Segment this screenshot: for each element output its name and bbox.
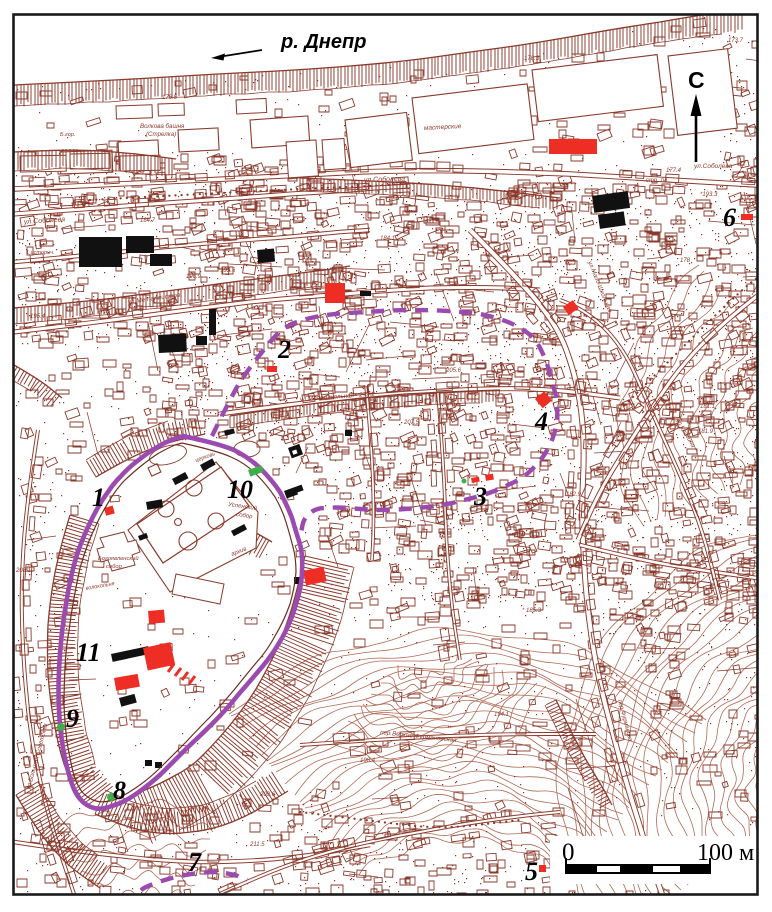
svg-text:11: 11 xyxy=(76,638,101,667)
svg-text:9: 9 xyxy=(66,704,79,733)
svg-text:7: 7 xyxy=(188,848,202,877)
svg-text:р. Днепр: р. Днепр xyxy=(280,31,366,53)
svg-text:Богоявленский: Богоявленский xyxy=(98,555,139,562)
svg-text:8: 8 xyxy=(113,776,126,805)
svg-text:209.6: 209.6 xyxy=(259,792,276,798)
svg-text:6: 6 xyxy=(723,203,736,232)
svg-text:*192.6: *192.6 xyxy=(218,268,236,274)
svg-text:173.7: 173.7 xyxy=(728,38,744,44)
svg-text:10: 10 xyxy=(227,475,253,504)
svg-text:0: 0 xyxy=(562,839,575,866)
svg-text:ул.Соболева: ул.Соболева xyxy=(693,162,733,170)
svg-text:176.5: 176.5 xyxy=(162,95,178,101)
svg-text:С: С xyxy=(688,67,705,93)
svg-text:* 185.3: * 185.3 xyxy=(522,608,542,614)
svg-text:3: 3 xyxy=(473,482,487,511)
svg-text:208.1: 208.1 xyxy=(15,568,31,574)
svg-text:181.1: 181.1 xyxy=(700,404,715,410)
svg-text:205.6: 205.6 xyxy=(445,368,462,374)
svg-text:стр. пл.: стр. пл. xyxy=(646,178,669,184)
svg-text:198.4: 198.4 xyxy=(360,758,376,764)
svg-text:Волкова башня: Волкова башня xyxy=(140,123,185,130)
svg-text:195.4: 195.4 xyxy=(30,314,46,320)
svg-text:184.1: 184.1 xyxy=(380,236,395,242)
svg-text:*193.3: *193.3 xyxy=(700,192,718,198)
svg-text:2: 2 xyxy=(277,335,291,364)
svg-text:* 184.7: * 184.7 xyxy=(136,218,156,224)
svg-text:(Стрелка): (Стрелка) xyxy=(146,131,176,138)
svg-text:5: 5 xyxy=(525,857,538,886)
svg-text:178.3: 178.3 xyxy=(524,56,540,62)
svg-text:Б.гор.: Б.гор. xyxy=(60,132,75,138)
svg-text:ул.Соболева: ул.Соболева xyxy=(363,175,406,184)
svg-text:207.5: 207.5 xyxy=(403,420,420,426)
svg-text:194.1: 194.1 xyxy=(494,712,509,718)
svg-text:собор: собор xyxy=(106,564,123,570)
svg-text:178: 178 xyxy=(680,258,691,264)
svg-text:1 историч.: 1 историч. xyxy=(26,250,54,256)
svg-text:177.4: 177.4 xyxy=(666,168,682,174)
svg-text:1: 1 xyxy=(92,483,105,512)
svg-text:182.9: 182.9 xyxy=(566,492,582,498)
svg-text:181.9: 181.9 xyxy=(698,429,714,435)
svg-text:211.5: 211.5 xyxy=(249,842,265,848)
svg-text:4: 4 xyxy=(534,407,548,436)
svg-text:100 м: 100 м xyxy=(697,840,754,866)
svg-text:196.9: 196.9 xyxy=(186,274,202,280)
